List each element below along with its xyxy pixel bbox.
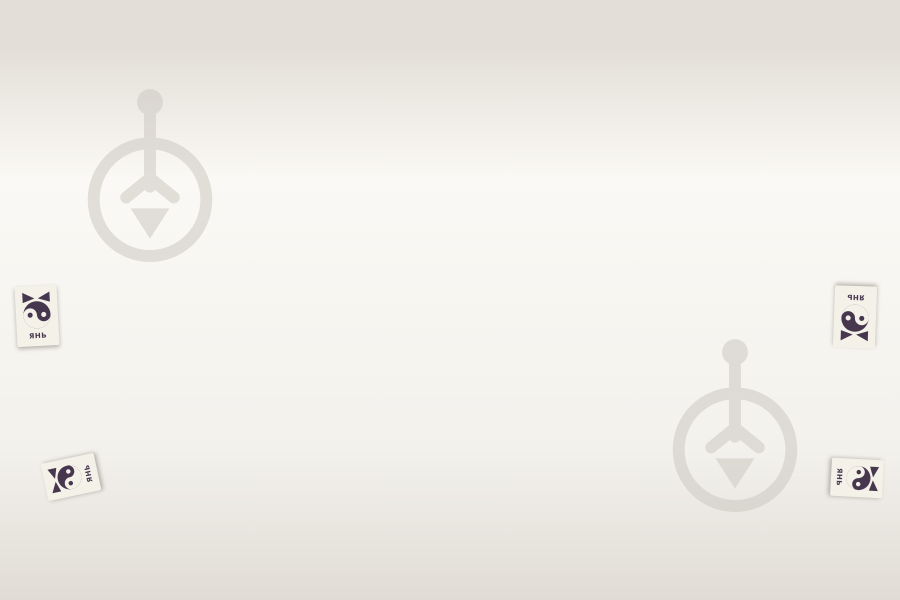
brand-tag-label: ЯНЬ: [84, 464, 95, 483]
cat-yin-yang-icon: [837, 300, 872, 341]
brand-tag-right: ЯНЬ: [833, 285, 877, 348]
cat-yin-yang-icon: [19, 291, 55, 333]
brand-tag-label: ЯНЬ: [847, 293, 865, 301]
brand-tag-bottom-right: ЯНЬ: [830, 458, 884, 499]
brand-tag-label: ЯНЬ: [835, 468, 843, 486]
cat-yin-yang-icon: [46, 459, 87, 496]
brand-tag-label: ЯНЬ: [29, 333, 47, 341]
anchor-emblem-watermark-icon: [85, 87, 215, 269]
brand-tag-left: ЯНЬ: [14, 285, 59, 347]
cat-yin-yang-icon: [842, 462, 880, 494]
anchor-emblem-watermark-icon: [670, 337, 800, 519]
mattress-cutaway-image: ЯНЬ ЯНЬ ЯНЬ: [0, 0, 900, 600]
